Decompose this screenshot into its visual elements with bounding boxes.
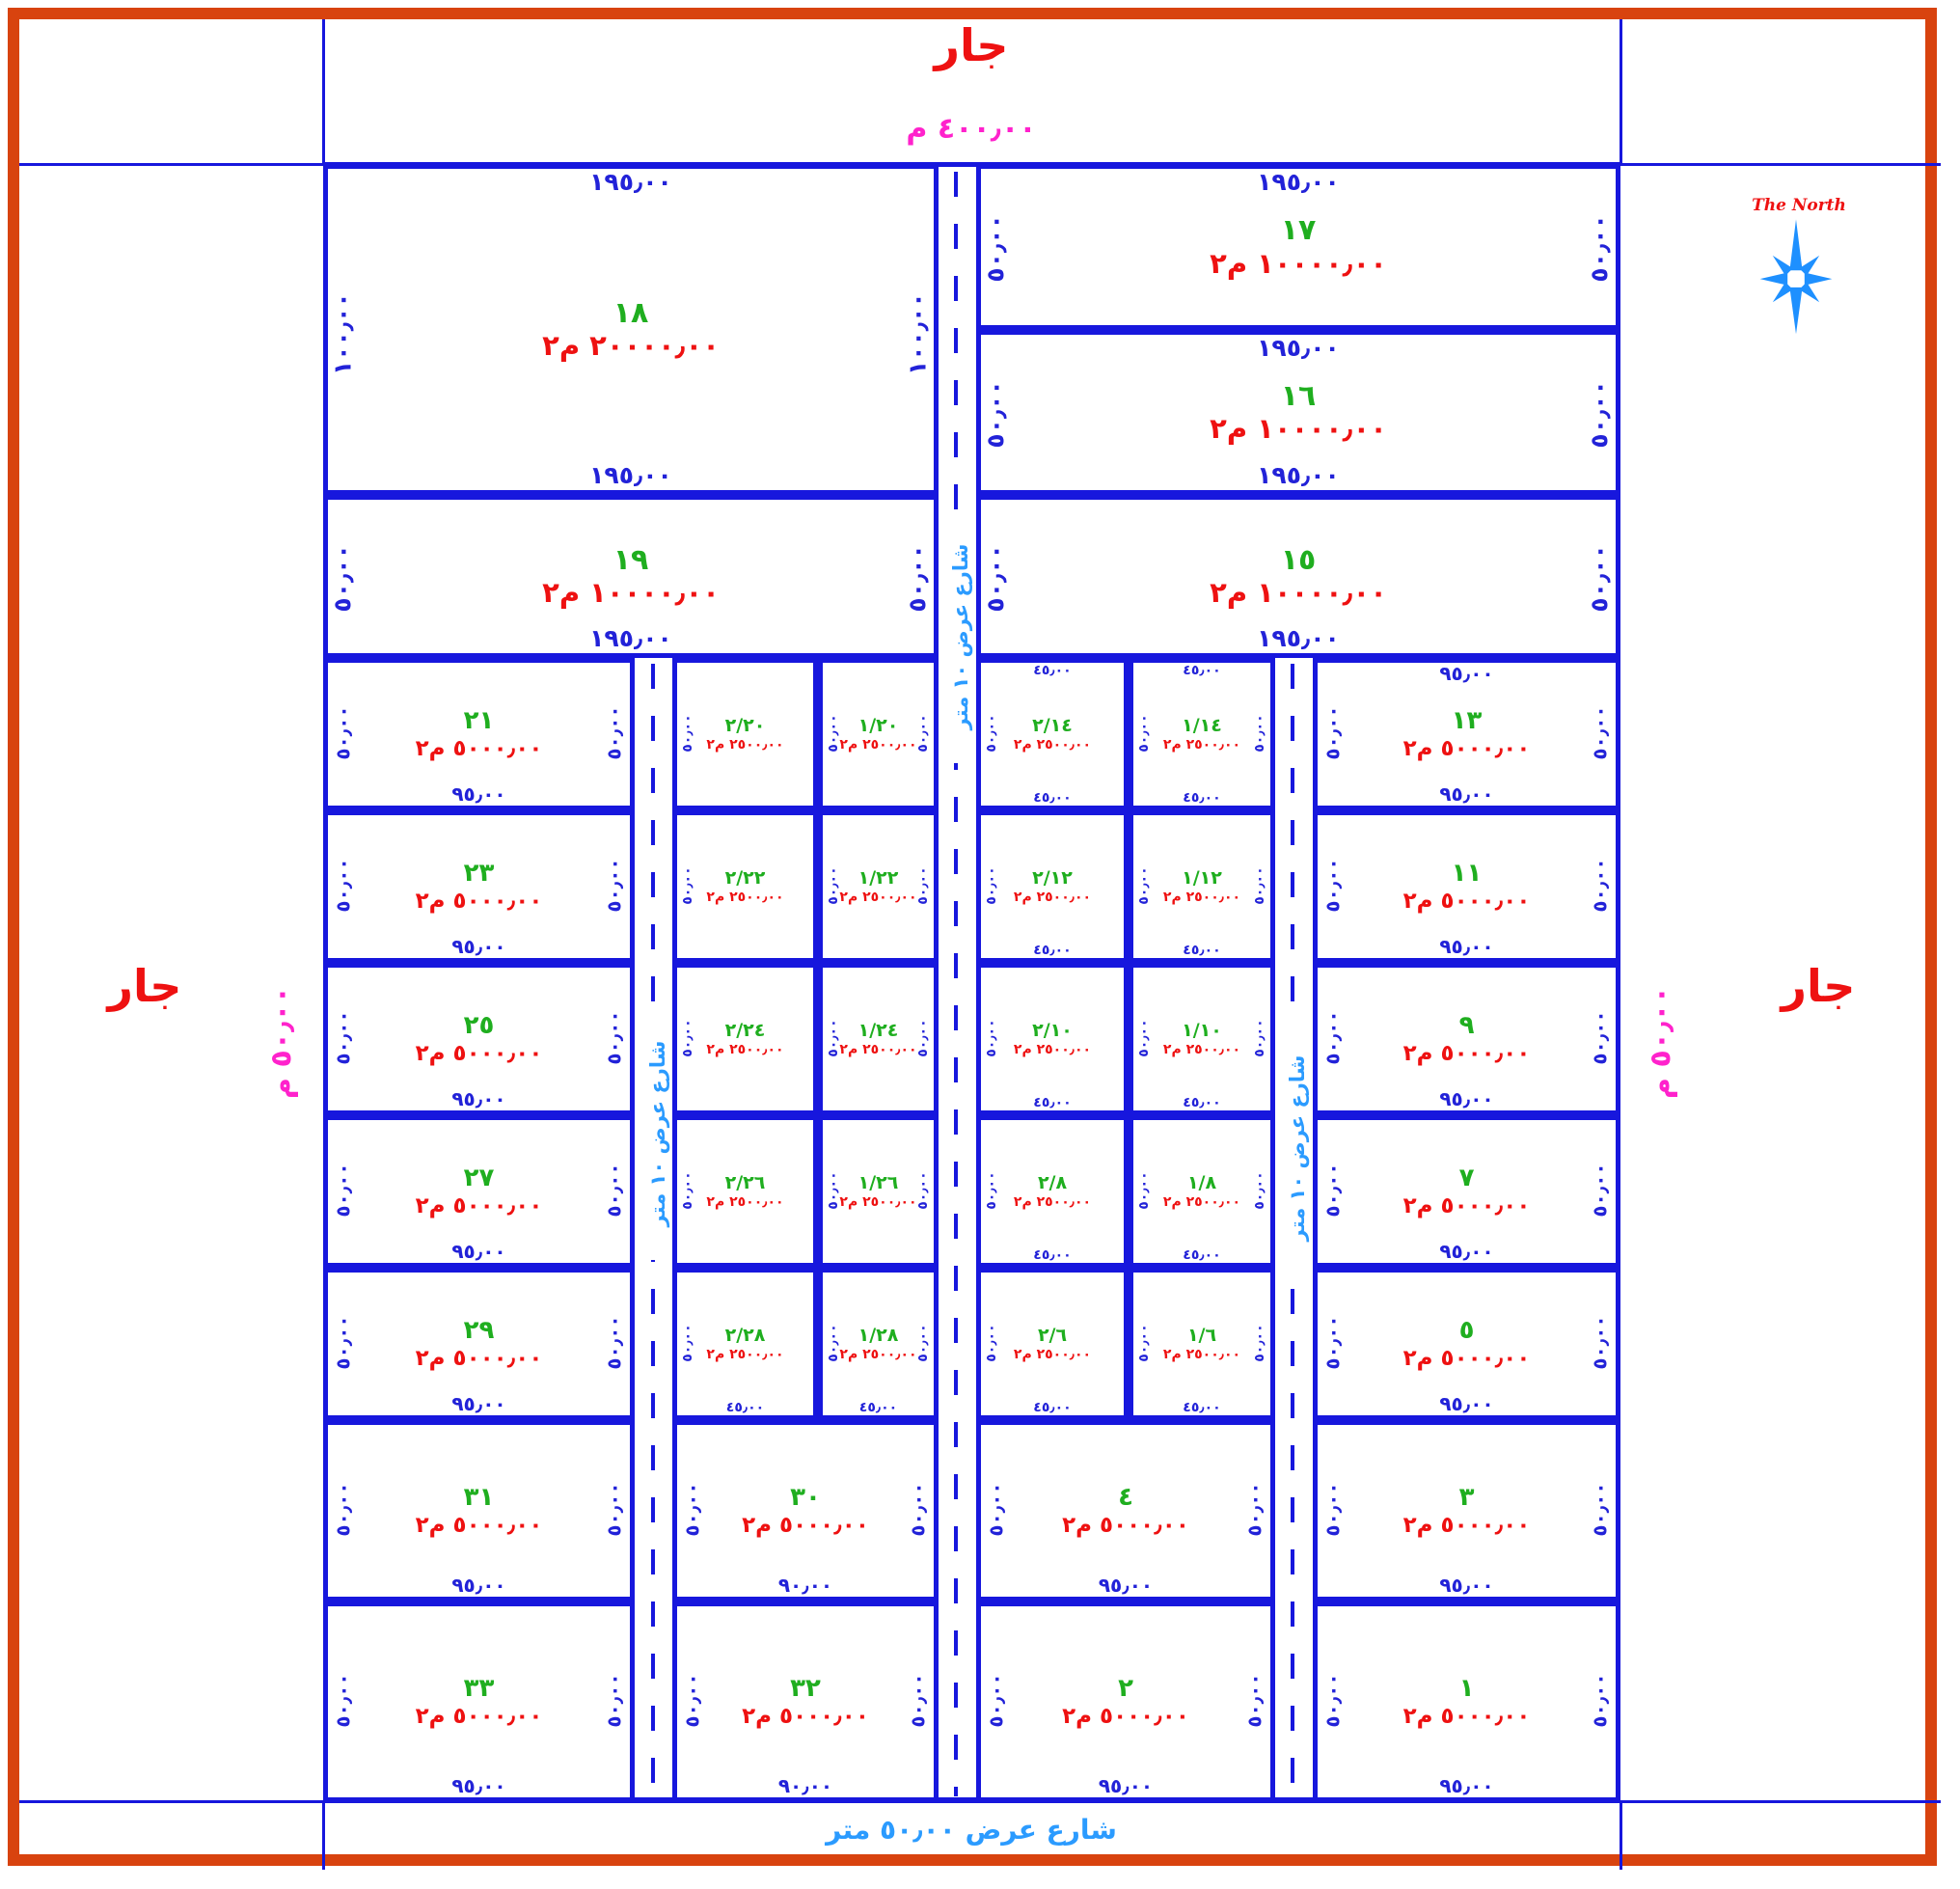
dim-bottom: ٩٥٫٠٠ [328, 1574, 630, 1597]
plot-area: ٥٠٠٠٫٠٠ م٢ [416, 1704, 543, 1729]
bottom-street-label: شارع عرض ٥٠٫٠٠ متر [682, 1814, 1261, 1846]
plot-2/24: ٥٠٫٠٠٢/٢٤٢٥٠٠٫٠٠ م٢ [672, 963, 818, 1115]
plot-number: ٢ [1118, 1675, 1133, 1704]
plot-area: ٥٠٠٠٫٠٠ م٢ [742, 1704, 869, 1729]
dim-right: ٥٠٫٠٠ [908, 1662, 930, 1739]
dim-bottom: ٩٥٫٠٠ [981, 1574, 1270, 1597]
dim-right: ٥٠٫٠٠ [915, 1162, 931, 1219]
plot-number: ١٥ [1281, 544, 1317, 578]
plot-number: ١٩ [613, 544, 649, 578]
plot-area: ٢٥٠٠٫٠٠ م٢ [839, 737, 916, 753]
dim-left: ٥٠٫٠٠ [333, 847, 355, 924]
dim-right: ٥٠٫٠٠ [908, 1471, 930, 1548]
dim-left: ٥٠٫٠٠ [1136, 1009, 1152, 1067]
dim-right: ٥٠٫٠٠ [915, 1314, 931, 1372]
dim-left: ٥٠٫٠٠ [680, 704, 695, 762]
plot-number: ١٦ [1281, 380, 1317, 414]
plot-area: ٢٥٠٠٫٠٠ م٢ [706, 890, 783, 905]
dim-top: ٤٥٫٠٠ [1133, 663, 1270, 678]
dim-bottom: ١٩٥٫٠٠ [981, 625, 1616, 653]
dim-right: ٥٠٫٠٠ [1252, 857, 1267, 915]
plot-1/26: ٥٠٫٠٠٥٠٫٠٠١/٢٦٢٥٠٠٫٠٠ م٢ [818, 1115, 939, 1268]
dim-bottom: ٩٥٫٠٠ [328, 783, 630, 806]
plot-29: ٩٥٫٠٠٥٠٫٠٠٥٠٫٠٠٢٩٥٠٠٠٫٠٠ م٢ [323, 1268, 635, 1420]
plot-number: ٢/٨ [1038, 1173, 1067, 1194]
dim-right: ٥٠٫٠٠ [604, 1152, 626, 1229]
dim-bottom: ٤٥٫٠٠ [981, 1400, 1124, 1415]
plot-area: ٥٠٠٠٫٠٠ م٢ [416, 1513, 543, 1538]
center-street-label: شارع عرض ١٠ متر [949, 510, 974, 763]
plot-2: ٩٥٫٠٠٥٠٫٠٠٥٠٫٠٠٢٥٠٠٠٫٠٠ م٢ [976, 1602, 1275, 1802]
dim-right: ٥٠٫٠٠ [1252, 1314, 1267, 1372]
dim-right: ٥٠٫٠٠ [604, 847, 626, 924]
dim-bottom: ٤٥٫٠٠ [1133, 1400, 1270, 1415]
dim-bottom: ٤٥٫٠٠ [823, 1400, 934, 1415]
right-neighbor-label: جار [1765, 960, 1871, 1012]
dim-left: ٥٠٫٠٠ [826, 1314, 841, 1372]
plot-area: ٥٠٠٠٫٠٠ م٢ [1403, 1346, 1531, 1371]
dim-bottom: ٤٥٫٠٠ [1133, 790, 1270, 806]
plot-number: ٢/٢٦ [725, 1173, 766, 1194]
plot-1/24: ٥٠٫٠٠٥٠٫٠٠١/٢٤٢٥٠٠٫٠٠ م٢ [818, 963, 939, 1115]
dim-left: ٥٠٫٠٠ [1322, 695, 1345, 772]
dim-right: ٥٠٫٠٠ [915, 704, 931, 762]
plot-number: ٣٣ [464, 1675, 495, 1704]
plot-area: ٥٠٠٠٫٠٠ م٢ [416, 1346, 543, 1371]
plot-area: ١٠٠٠٠٫٠٠ م٢ [1210, 248, 1387, 280]
dim-left: ٥٠٫٠٠ [333, 999, 355, 1077]
plot-13: ٩٥٫٠٠٩٥٫٠٠٥٠٫٠٠٥٠٫٠٠١٣٥٠٠٠٫٠٠ م٢ [1313, 658, 1620, 810]
plot-2/10: ٤٥٫٠٠٥٠٫٠٠٢/١٠٢٥٠٠٫٠٠ م٢ [976, 963, 1129, 1115]
dim-right: ٥٠٫٠٠ [1244, 1471, 1266, 1548]
dim-top: ١٩٥٫٠٠ [981, 335, 1616, 363]
plot-number: ٢٣ [464, 860, 495, 889]
plot-1/22: ٥٠٫٠٠٥٠٫٠٠١/٢٢٢٥٠٠٫٠٠ م٢ [818, 810, 939, 963]
dim-left: ٥٠٫٠٠ [983, 375, 1011, 452]
plot-18: ١٩٥٫٠٠١٩٥٫٠٠١٠٠٫٠٠١٠٠٫٠٠١٨٢٠٠٠٠٫٠٠ م٢ [323, 164, 939, 495]
dim-left: ٥٠٫٠٠ [680, 1009, 695, 1067]
dim-bottom: ١٩٥٫٠٠ [328, 462, 934, 490]
dim-left: ٥٠٫٠٠ [682, 1662, 704, 1739]
plot-15: ١٩٥٫٠٠٥٠٫٠٠٥٠٫٠٠١٥١٠٠٠٠٫٠٠ م٢ [976, 495, 1620, 658]
plot-number: ١٣ [1452, 707, 1483, 736]
dim-left: ٥٠٫٠٠ [1322, 1662, 1345, 1739]
dim-left: ٥٠٫٠٠ [1322, 1471, 1345, 1548]
dim-left: ٥٠٫٠٠ [986, 1662, 1008, 1739]
dim-bottom: ٩٥٫٠٠ [981, 1775, 1270, 1797]
dim-left: ٥٠٫٠٠ [333, 1304, 355, 1382]
compass-rose-icon [1754, 217, 1838, 342]
plot-1/14: ٤٥٫٠٠٤٥٫٠٠٥٠٫٠٠٥٠٫٠٠١/١٤٢٥٠٠٫٠٠ م٢ [1129, 658, 1275, 810]
plot-11: ٩٥٫٠٠٥٠٫٠٠٥٠٫٠٠١١٥٠٠٠٫٠٠ م٢ [1313, 810, 1620, 963]
top-width-dimension: ٤٠٠٫٠٠ م [856, 112, 1087, 146]
plot-16: ١٩٥٫٠٠١٩٥٫٠٠٥٠٫٠٠٥٠٫٠٠١٦١٠٠٠٠٫٠٠ م٢ [976, 330, 1620, 495]
plot-number: ١/٢٦ [858, 1173, 899, 1194]
plot-23: ٩٥٫٠٠٥٠٫٠٠٥٠٫٠٠٢٣٥٠٠٠٫٠٠ م٢ [323, 810, 635, 963]
dim-left: ٥٠٫٠٠ [984, 1314, 999, 1372]
plot-area: ٢٥٠٠٫٠٠ م٢ [1163, 890, 1240, 905]
plot-2/22: ٥٠٫٠٠٢/٢٢٢٥٠٠٫٠٠ م٢ [672, 810, 818, 963]
plot-30: ٩٠٫٠٠٥٠٫٠٠٥٠٫٠٠٣٠٥٠٠٠٫٠٠ م٢ [672, 1420, 939, 1602]
dim-bottom: ٩٥٫٠٠ [1318, 1775, 1616, 1797]
plot-number: ٢/١٤ [1032, 716, 1073, 737]
dim-right: ٥٠٫٠٠ [1587, 209, 1615, 287]
plot-number: ٣ [1459, 1484, 1475, 1513]
dim-left: ٥٠٫٠٠ [984, 857, 999, 915]
dim-bottom: ٩٥٫٠٠ [328, 1393, 630, 1415]
plot-area: ٥٠٠٠٫٠٠ م٢ [1403, 1041, 1531, 1066]
dim-right: ٥٠٫٠٠ [1244, 1662, 1266, 1739]
plot-2/14: ٤٥٫٠٠٤٥٫٠٠٥٠٫٠٠٢/١٤٢٥٠٠٫٠٠ م٢ [976, 658, 1129, 810]
dim-right: ٥٠٫٠٠ [905, 539, 933, 616]
plot-area: ٢٥٠٠٫٠٠ م٢ [839, 1042, 916, 1057]
plot-number: ٧ [1459, 1164, 1475, 1193]
plot-7: ٩٥٫٠٠٥٠٫٠٠٥٠٫٠٠٧٥٠٠٠٫٠٠ م٢ [1313, 1115, 1620, 1268]
dim-left: ٥٠٫٠٠ [330, 539, 358, 616]
plot-area: ٢٥٠٠٫٠٠ م٢ [1014, 890, 1091, 905]
plot-2/6: ٤٥٫٠٠٥٠٫٠٠٢/٦٢٥٠٠٫٠٠ م٢ [976, 1268, 1129, 1420]
bottom-right-divider-line [1620, 1802, 1622, 1870]
plot-area: ٥٠٠٠٫٠٠ م٢ [416, 889, 543, 914]
plot-area: ٢٠٠٠٠٫٠٠ م٢ [542, 330, 720, 362]
plot-number: ١/٨ [1187, 1173, 1216, 1194]
dim-left: ٥٠٫٠٠ [826, 857, 841, 915]
plot-21: ٩٥٫٠٠٥٠٫٠٠٥٠٫٠٠٢١٥٠٠٠٫٠٠ م٢ [323, 658, 635, 810]
plot-31: ٩٥٫٠٠٥٠٫٠٠٥٠٫٠٠٣١٥٠٠٠٫٠٠ م٢ [323, 1420, 635, 1602]
left-width-dimension: ٥٠٫٠٠ م [265, 951, 299, 1135]
plot-area: ٥٠٠٠٫٠٠ م٢ [416, 1193, 543, 1218]
dim-right: ١٠٠٫٠٠ [905, 292, 933, 370]
plot-area: ٥٠٠٠٫٠٠ م٢ [1062, 1513, 1189, 1538]
dim-right: ٥٠٫٠٠ [604, 695, 626, 772]
top-right-divider-line [1620, 19, 1622, 164]
dim-left: ٥٠٫٠٠ [984, 1009, 999, 1067]
dim-right: ٥٠٫٠٠ [1590, 1152, 1612, 1229]
dim-bottom: ٩٥٫٠٠ [328, 1775, 630, 1797]
dim-top: ٤٥٫٠٠ [981, 663, 1124, 678]
dim-bottom: ٩٥٫٠٠ [1318, 1393, 1616, 1415]
land-subdivision-plan: { "frame": { "top_neighbor": "جار", "top… [0, 0, 1960, 1889]
dim-left: ٥٠٫٠٠ [680, 1314, 695, 1372]
dim-left: ٥٠٫٠٠ [333, 1662, 355, 1739]
dim-right: ٥٠٫٠٠ [604, 1304, 626, 1382]
dim-right: ٥٠٫٠٠ [1590, 1662, 1612, 1739]
dim-left: ٥٠٫٠٠ [984, 704, 999, 762]
plot-3: ٩٥٫٠٠٥٠٫٠٠٥٠٫٠٠٣٥٠٠٠٫٠٠ م٢ [1313, 1420, 1620, 1602]
dim-bottom: ٩٥٫٠٠ [328, 936, 630, 958]
dim-left: ٥٠٫٠٠ [1136, 1162, 1152, 1219]
plot-area: ٥٠٠٠٫٠٠ م٢ [1403, 736, 1531, 761]
plot-number: ١/١٢ [1182, 868, 1222, 890]
dim-right: ٥٠٫٠٠ [604, 999, 626, 1077]
dim-left: ٥٠٫٠٠ [826, 1162, 841, 1219]
north-label: The North [1736, 196, 1862, 215]
dim-right: ٥٠٫٠٠ [915, 857, 931, 915]
plot-33: ٩٥٫٠٠٥٠٫٠٠٥٠٫٠٠٣٣٥٠٠٠٫٠٠ م٢ [323, 1602, 635, 1802]
plot-1/12: ٤٥٫٠٠٥٠٫٠٠٥٠٫٠٠١/١٢٢٥٠٠٫٠٠ م٢ [1129, 810, 1275, 963]
plot-number: ١ [1459, 1675, 1475, 1704]
right-width-dimension: ٥٠٫٠٠ م [1645, 951, 1678, 1135]
plot-1: ٩٥٫٠٠٥٠٫٠٠٥٠٫٠٠١٥٠٠٠٫٠٠ م٢ [1313, 1602, 1620, 1802]
plot-area: ٥٠٠٠٫٠٠ م٢ [416, 736, 543, 761]
plot-area: ٢٥٠٠٫٠٠ م٢ [706, 1042, 783, 1057]
dim-left: ٥٠٫٠٠ [826, 704, 841, 762]
plot-number: ١/٦ [1187, 1326, 1216, 1347]
plot-32: ٩٠٫٠٠٥٠٫٠٠٥٠٫٠٠٣٢٥٠٠٠٫٠٠ م٢ [672, 1602, 939, 1802]
dim-right: ٥٠٫٠٠ [1252, 1009, 1267, 1067]
plot-area: ٢٥٠٠٫٠٠ م٢ [839, 1347, 916, 1362]
dim-left: ٥٠٫٠٠ [983, 209, 1011, 287]
dim-bottom: ٩٥٫٠٠ [1318, 1088, 1616, 1110]
plot-area: ٢٥٠٠٫٠٠ م٢ [839, 1194, 916, 1210]
dim-bottom: ٤٥٫٠٠ [981, 943, 1124, 958]
dim-left: ٥٠٫٠٠ [680, 1162, 695, 1219]
plot-area: ٢٥٠٠٫٠٠ م٢ [706, 737, 783, 753]
dim-bottom: ٩٥٫٠٠ [328, 1088, 630, 1110]
dim-left: ٥٠٫٠٠ [984, 1162, 999, 1219]
dim-bottom: ٤٥٫٠٠ [981, 790, 1124, 806]
plot-number: ٢/٢٤ [725, 1021, 766, 1042]
plot-2/20: ٥٠٫٠٠٢/٢٠٢٥٠٠٫٠٠ م٢ [672, 658, 818, 810]
dim-right: ٥٠٫٠٠ [1252, 1162, 1267, 1219]
plot-1/28: ٤٥٫٠٠٥٠٫٠٠٥٠٫٠٠١/٢٨٢٥٠٠٫٠٠ م٢ [818, 1268, 939, 1420]
dim-left: ٥٠٫٠٠ [1322, 1304, 1345, 1382]
plot-area: ٢٥٠٠٫٠٠ م٢ [1014, 1347, 1091, 1362]
dim-bottom: ٩٠٫٠٠ [677, 1574, 934, 1597]
bottom-left-divider-line [322, 1802, 325, 1870]
dim-bottom: ٤٥٫٠٠ [981, 1095, 1124, 1110]
dim-left: ٥٠٫٠٠ [986, 1471, 1008, 1548]
plot-area: ٢٥٠٠٫٠٠ م٢ [1014, 1042, 1091, 1057]
dim-left: ٥٠٫٠٠ [1322, 999, 1345, 1077]
dim-left: ٥٠٫٠٠ [1322, 1152, 1345, 1229]
plot-area: ٢٥٠٠٫٠٠ م٢ [1163, 1194, 1240, 1210]
plot-1/20: ٥٠٫٠٠٥٠٫٠٠١/٢٠٢٥٠٠٫٠٠ م٢ [818, 658, 939, 810]
plot-area: ٢٥٠٠٫٠٠ م٢ [1163, 1042, 1240, 1057]
plot-1/6: ٤٥٫٠٠٥٠٫٠٠٥٠٫٠٠١/٦٢٥٠٠٫٠٠ م٢ [1129, 1268, 1275, 1420]
dim-left: ٥٠٫٠٠ [1136, 704, 1152, 762]
plot-number: ٢/٦ [1038, 1326, 1067, 1347]
dim-left: ٥٠٫٠٠ [680, 857, 695, 915]
plot-number: ٢٧ [464, 1164, 495, 1193]
center-street-centerline [954, 172, 958, 1796]
plot-area: ٥٠٠٠٫٠٠ م٢ [1403, 1704, 1531, 1729]
dim-top: ١٩٥٫٠٠ [981, 169, 1616, 197]
plot-number: ٢/١٢ [1032, 868, 1073, 890]
dim-right: ٥٠٫٠٠ [1587, 539, 1615, 616]
plot-area: ٥٠٠٠٫٠٠ م٢ [742, 1513, 869, 1538]
dim-bottom: ٩٥٫٠٠ [328, 1241, 630, 1263]
plot-area: ٢٥٠٠٫٠٠ م٢ [1163, 737, 1240, 753]
dim-right: ٥٠٫٠٠ [915, 1009, 931, 1067]
dim-bottom: ٤٥٫٠٠ [1133, 943, 1270, 958]
plot-number: ٩ [1459, 1012, 1475, 1041]
dim-left: ٥٠٫٠٠ [333, 1152, 355, 1229]
plot-number: ١/٢٤ [858, 1021, 899, 1042]
plot-area: ٥٠٠٠٫٠٠ م٢ [1403, 1513, 1531, 1538]
dim-left: ٥٠٫٠٠ [333, 695, 355, 772]
dim-right: ٥٠٫٠٠ [1590, 1471, 1612, 1548]
dim-bottom: ٩٥٫٠٠ [1318, 783, 1616, 806]
plot-2/8: ٤٥٫٠٠٥٠٫٠٠٢/٨٢٥٠٠٫٠٠ م٢ [976, 1115, 1129, 1268]
plot-area: ٢٥٠٠٫٠٠ م٢ [1014, 1194, 1091, 1210]
plot-area: ٢٥٠٠٫٠٠ م٢ [1163, 1347, 1240, 1362]
plot-number: ١/٢٨ [858, 1326, 899, 1347]
dim-bottom: ٩٥٫٠٠ [1318, 1241, 1616, 1263]
outer-border [8, 8, 1937, 1866]
plot-number: ٥ [1459, 1317, 1475, 1346]
plot-number: ١/١٤ [1182, 716, 1222, 737]
plot-area: ٢٥٠٠٫٠٠ م٢ [839, 890, 916, 905]
plot-number: ٣٢ [790, 1675, 821, 1704]
dim-left: ٥٠٫٠٠ [682, 1471, 704, 1548]
plot-area: ٢٥٠٠٫٠٠ م٢ [1014, 737, 1091, 753]
plot-2/26: ٥٠٫٠٠٢/٢٦٢٥٠٠٫٠٠ م٢ [672, 1115, 818, 1268]
plot-9: ٩٥٫٠٠٥٠٫٠٠٥٠٫٠٠٩٥٠٠٠٫٠٠ م٢ [1313, 963, 1620, 1115]
plot-27: ٩٥٫٠٠٥٠٫٠٠٥٠٫٠٠٢٧٥٠٠٠٫٠٠ م٢ [323, 1115, 635, 1268]
plot-number: ٢٥ [464, 1012, 495, 1041]
dim-left: ٥٠٫٠٠ [983, 539, 1011, 616]
dim-bottom: ٤٥٫٠٠ [1133, 1247, 1270, 1263]
dim-bottom: ١٩٥٫٠٠ [981, 462, 1616, 490]
left-neighbor-label: جار [92, 960, 198, 1012]
plot-25: ٩٥٫٠٠٥٠٫٠٠٥٠٫٠٠٢٥٥٠٠٠٫٠٠ م٢ [323, 963, 635, 1115]
dim-left: ٥٠٫٠٠ [1136, 1314, 1152, 1372]
dim-bottom: ٤٥٫٠٠ [677, 1400, 813, 1415]
plot-1/10: ٤٥٫٠٠٥٠٫٠٠٥٠٫٠٠١/١٠٢٥٠٠٫٠٠ م٢ [1129, 963, 1275, 1115]
plot-area: ٥٠٠٠٫٠٠ م٢ [1403, 1193, 1531, 1218]
plot-area: ٥٠٠٠٫٠٠ م٢ [416, 1041, 543, 1066]
dim-left: ١٠٠٫٠٠ [330, 292, 358, 370]
dim-right: ٥٠٫٠٠ [1590, 1304, 1612, 1382]
plot-number: ١/٢٠ [858, 716, 899, 737]
plot-4: ٩٥٫٠٠٥٠٫٠٠٥٠٫٠٠٤٥٠٠٠٫٠٠ م٢ [976, 1420, 1275, 1602]
top-neighbor-label: جار [894, 19, 1048, 71]
plot-area: ٢٥٠٠٫٠٠ م٢ [706, 1347, 783, 1362]
dim-bottom: ٤٥٫٠٠ [1133, 1095, 1270, 1110]
plot-17: ١٩٥٫٠٠٥٠٫٠٠٥٠٫٠٠١٧١٠٠٠٠٫٠٠ م٢ [976, 164, 1620, 330]
left-street-label: شارع عرض ١٠ متر [646, 1007, 671, 1260]
dim-left: ٥٠٫٠٠ [1136, 857, 1152, 915]
dim-top: ٩٥٫٠٠ [1318, 663, 1616, 685]
plot-number: ٢/٢٢ [725, 868, 766, 890]
dim-right: ٥٠٫٠٠ [1587, 375, 1615, 452]
plot-number: ٢/٢٨ [725, 1326, 766, 1347]
plot-area: ٥٠٠٠٫٠٠ م٢ [1062, 1704, 1189, 1729]
dim-right: ٥٠٫٠٠ [604, 1471, 626, 1548]
plot-number: ٢١ [464, 707, 495, 736]
plot-number: ١/١٠ [1182, 1021, 1222, 1042]
plot-2/28: ٤٥٫٠٠٥٠٫٠٠٢/٢٨٢٥٠٠٫٠٠ م٢ [672, 1268, 818, 1420]
plot-area: ٢٥٠٠٫٠٠ م٢ [706, 1194, 783, 1210]
dim-bottom: ٤٥٫٠٠ [981, 1247, 1124, 1263]
dim-bottom: ٩٥٫٠٠ [1318, 1574, 1616, 1597]
plot-number: ١٨ [613, 297, 649, 331]
plot-number: ٣١ [464, 1484, 495, 1513]
plot-number: ١٧ [1281, 214, 1317, 248]
plot-5: ٩٥٫٠٠٥٠٫٠٠٥٠٫٠٠٥٥٠٠٠٫٠٠ م٢ [1313, 1268, 1620, 1420]
plot-19: ١٩٥٫٠٠٥٠٫٠٠٥٠٫٠٠١٩١٠٠٠٠٫٠٠ م٢ [323, 495, 939, 658]
plot-area: ١٠٠٠٠٫٠٠ م٢ [1210, 413, 1387, 445]
plot-area: ٥٠٠٠٫٠٠ م٢ [1403, 889, 1531, 914]
plot-number: ٣٠ [790, 1484, 821, 1513]
plot-number: ٤ [1118, 1484, 1133, 1513]
top-left-divider-line [322, 19, 325, 164]
plot-number: ٢/٢٠ [725, 716, 766, 737]
dim-right: ٥٠٫٠٠ [1590, 847, 1612, 924]
dim-left: ٥٠٫٠٠ [1322, 847, 1345, 924]
dim-bottom: ٩٥٫٠٠ [1318, 936, 1616, 958]
dim-left: ٥٠٫٠٠ [826, 1009, 841, 1067]
dim-right: ٥٠٫٠٠ [1590, 695, 1612, 772]
plot-number: ١١ [1452, 860, 1483, 889]
dim-right: ٥٠٫٠٠ [1590, 999, 1612, 1077]
plot-number: ٢٩ [464, 1317, 495, 1346]
plot-2/12: ٤٥٫٠٠٥٠٫٠٠٢/١٢٢٥٠٠٫٠٠ م٢ [976, 810, 1129, 963]
right-street-label: شارع عرض ١٠ متر [1286, 1022, 1311, 1274]
plot-area: ١٠٠٠٠٫٠٠ م٢ [1210, 577, 1387, 609]
dim-bottom: ٩٠٫٠٠ [677, 1775, 934, 1797]
dim-right: ٥٠٫٠٠ [604, 1662, 626, 1739]
dim-top: ١٩٥٫٠٠ [328, 169, 934, 197]
dim-left: ٥٠٫٠٠ [333, 1471, 355, 1548]
plot-number: ٢/١٠ [1032, 1021, 1073, 1042]
plot-1/8: ٤٥٫٠٠٥٠٫٠٠٥٠٫٠٠١/٨٢٥٠٠٫٠٠ م٢ [1129, 1115, 1275, 1268]
plot-number: ١/٢٢ [858, 868, 899, 890]
plot-area: ١٠٠٠٠٫٠٠ م٢ [542, 577, 720, 609]
dim-right: ٥٠٫٠٠ [1252, 704, 1267, 762]
dim-bottom: ١٩٥٫٠٠ [328, 625, 934, 653]
